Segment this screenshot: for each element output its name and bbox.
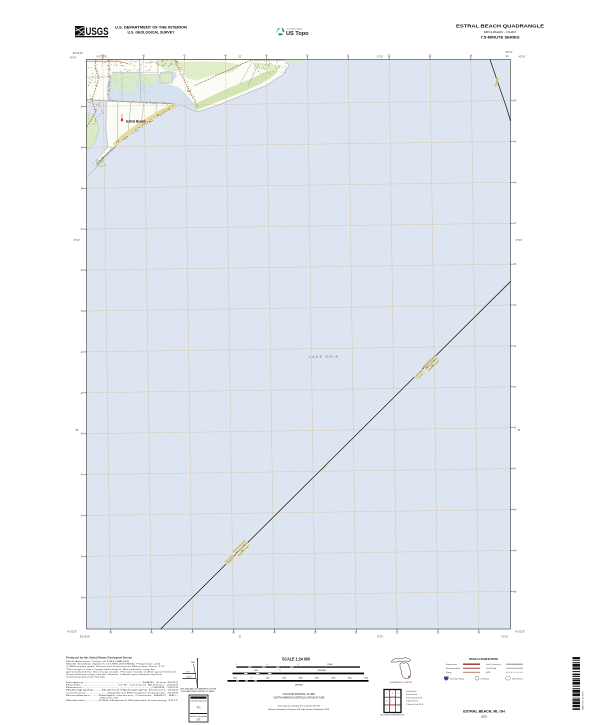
svg-text:QUADRANGLE LOCATION: QUADRANGLE LOCATION [390,681,413,684]
svg-text:Estral Beach: Estral Beach [126,120,145,124]
svg-text:55': 55' [517,429,521,432]
svg-text:1 Flat Rock: 1 Flat Rock [406,690,416,693]
svg-text:50: 50 [314,632,317,634]
svg-text:This map was produced to confo: This map was produced to conform with th… [278,705,321,708]
svg-text:This map is not a legal docume: This map is not a legal document. Bounda… [66,668,157,671]
svg-text:17'30": 17'30" [377,636,384,639]
svg-text:49: 49 [273,632,276,634]
svg-text:.5: .5 [266,664,268,666]
svg-text:Boundaries.......Multiple sour: Boundaries.......Multiple sources; Censu… [66,694,179,697]
svg-text:1 MILE: 1 MILE [327,664,333,666]
svg-text:National Geospatial Program US: National Geospatial Program US Topo Prod… [268,708,330,711]
svg-text:41°52'30": 41°52'30" [67,631,77,634]
svg-text:52: 52 [396,632,399,634]
svg-text:0: 0 [298,664,299,666]
svg-text:Local Road: Local Road [486,668,496,670]
svg-text:50: 50 [81,107,84,109]
svg-text:50: 50 [514,101,517,103]
svg-text:3000: 3000 [299,678,303,680]
svg-text:4 Stony Point: 4 Stony Point [406,700,418,703]
svg-text:41: 41 [514,469,517,471]
svg-text:ESTRAL BEACH, MI, OH: ESTRAL BEACH, MI, OH [463,710,505,714]
svg-text:46: 46 [150,632,153,634]
svg-text:ROAD CLASSIFICATION: ROAD CLASSIFICATION [469,658,498,661]
svg-text:3 Rockwood OE E: 3 Rockwood OE E [406,697,423,699]
svg-text:48: 48 [224,56,227,58]
svg-text:54: 54 [470,56,473,58]
svg-text:38: 38 [514,591,517,593]
svg-text:42°00': 42°00' [70,57,77,60]
svg-text:North American Datum of 1983 (: North American Datum of 1983 (NAD83) [66,660,130,663]
svg-text:39: 39 [81,556,84,558]
svg-text:7.5-MINUTE SERIES: 7.5-MINUTE SERIES [481,36,521,40]
svg-text:'45: '45 [109,632,113,634]
svg-text:1000: 1000 [266,678,270,680]
svg-text:44: 44 [514,346,517,348]
svg-text:4000: 4000 [315,678,319,680]
svg-text:US Route: US Route [481,677,491,680]
svg-text:US Topo: US Topo [286,31,309,37]
svg-text:Imagery.......................: Imagery.................................… [66,681,180,684]
svg-text:World Geodetic System of 1984: World Geodetic System of 1984 (WGS84). P… [66,663,161,666]
svg-text:52: 52 [388,56,391,58]
svg-text:2023: 2023 [481,715,487,719]
svg-text:47: 47 [81,229,84,231]
svg-text:47: 47 [183,56,186,58]
svg-text:entering private lands.: entering private lands. [66,676,107,679]
svg-text:MICHIGAN - OHIO: MICHIGAN - OHIO [484,30,517,34]
svg-text:46: 46 [514,264,517,266]
svg-text:Hydrography.......National Hyd: Hydrography.......National Hydrography D… [66,689,180,692]
svg-text:49: 49 [81,147,84,149]
svg-text:20': 20' [238,636,242,639]
svg-text:44: 44 [81,352,84,354]
svg-text:40: 40 [514,510,517,512]
svg-text:42°00': 42°00' [519,56,526,59]
svg-text:53: 53 [437,632,440,634]
svg-text:1: 1 [236,664,237,666]
svg-text:3: 3 [398,693,399,695]
svg-text:5000: 5000 [332,678,336,680]
svg-text:55': 55' [75,429,79,432]
svg-text:48: 48 [81,188,84,190]
svg-text:50: 50 [306,56,309,58]
svg-text:43: 43 [81,393,84,395]
svg-text:³¹⁰57'30"E: ³¹⁰57'30"E [96,56,107,59]
svg-text:48: 48 [514,182,517,184]
svg-text:Produced by the United States: Produced by the United States Geological… [66,657,133,660]
svg-text:5: 5 [386,708,387,710]
svg-text:1 000-meter grid: Universal Tr: 1 000-meter grid: Universal Transverse M… [66,665,166,668]
svg-text:Expressway: Expressway [446,664,457,666]
svg-text:53: 53 [429,56,432,58]
svg-text:0: 0 [251,678,252,680]
svg-text:Ramp: Ramp [446,672,452,674]
svg-text:6000: 6000 [348,678,352,680]
svg-text:1000: 1000 [233,678,237,680]
svg-text:SCALE 1:24 000: SCALE 1:24 000 [282,657,311,662]
svg-text:83°22'30": 83°22'30" [73,52,83,55]
svg-text:17'30": 17'30" [377,56,384,59]
svg-text:U.S. GEOLOGICAL SURVEY: U.S. GEOLOGICAL SURVEY [128,31,176,35]
svg-text:48: 48 [232,632,235,634]
svg-text:²24: ²24 [505,55,509,58]
svg-text:49: 49 [514,141,517,143]
svg-text:51: 51 [347,56,350,58]
svg-text:U.S. DEPARTMENT OF THE INTERIO: U.S. DEPARTMENT OF THE INTERIOR [115,26,188,30]
svg-text:MN: MN [191,662,195,664]
svg-text:NORTH AMERICAN VERTICAL DATUM: NORTH AMERICAN VERTICAL DATUM OF 1988 [274,696,325,699]
svg-text:ADJOINING QUADRANGLES: ADJOINING QUADRANGLES [380,714,405,717]
svg-text:generalized for this map scale: generalized for this map scale. Private … [66,670,177,673]
svg-text:2000: 2000 [282,678,286,680]
svg-text:17T: 17T [196,718,201,722]
svg-text:49: 49 [265,56,268,58]
svg-text:51: 51 [355,632,358,634]
svg-text:Secondary Hwy: Secondary Hwy [446,668,460,670]
svg-text:42: 42 [81,434,84,436]
svg-text:1: 1 [386,693,387,695]
svg-text:4WD: 4WD [486,672,491,674]
svg-text:★: ★ [196,657,199,661]
svg-text:5 Stony Point OE S: 5 Stony Point OE S [406,703,424,706]
svg-text:1000 FEET: 1000 FEET [317,670,327,672]
svg-text:0: 0 [280,670,281,672]
svg-text:40: 40 [81,516,84,518]
svg-text:20': 20' [238,56,242,59]
svg-text:Interstate Route: Interstate Route [450,677,465,680]
svg-text:39: 39 [514,550,517,552]
svg-text:38: 38 [81,597,84,599]
svg-text:47: 47 [514,223,517,225]
svg-text:LAKE ERIE: LAKE ERIE [309,354,340,359]
svg-text:83°15': 83°15' [502,636,509,639]
svg-text:46: 46 [142,56,145,58]
svg-text:Wetlands...........FWS Nationa: Wetlands...........FWS National Wetlands… [66,699,180,702]
svg-text:57'30": 57'30" [516,239,523,242]
svg-text:2: 2 [392,693,393,695]
svg-text:47: 47 [191,632,194,634]
svg-text:Roads.........................: Roads.......................... U.S. Cen… [66,684,180,687]
svg-text:2 Rockwood: 2 Rockwood [406,694,417,696]
svg-text:ESTRAL BEACH QUADRANGLE: ESTRAL BEACH QUADRANGLE [456,24,545,30]
svg-text:100,000-m Square ID: 100,000-m Square ID [190,700,207,703]
svg-text:43: 43 [514,387,517,389]
svg-text:Local Connector: Local Connector [486,663,501,666]
svg-text:45: 45 [514,305,517,307]
svg-text:45: 45 [81,311,84,313]
svg-text:46: 46 [81,270,84,272]
svg-text:83°22'30": 83°22'30" [80,636,90,639]
svg-text:reservations may not be shown.: reservations may not be shown. Obtain pe… [66,673,164,676]
svg-text:State Route: State Route [512,677,523,680]
svg-text:METERS: METERS [295,684,303,686]
svg-text:DECLINATION AT CENTER OF SHEET: DECLINATION AT CENTER OF SHEET [181,690,215,693]
svg-text:41°52'30": 41°52'30" [515,631,525,634]
svg-text:CONTOUR INTERVAL 10 FEET: CONTOUR INTERVAL 10 FEET [283,693,316,696]
svg-text:83°15': 83°15' [506,51,513,54]
svg-text:4: 4 [386,701,387,703]
svg-text:41: 41 [81,475,84,477]
svg-text:7000: 7000 [364,678,368,680]
svg-text:57'30": 57'30" [74,239,81,242]
svg-text:Contours.................Natio: Contours.................National Elevat… [66,691,180,694]
svg-text:54: 54 [478,632,481,634]
svg-text:1°8': 1°8' [186,671,190,673]
svg-text:TG: TG [196,706,201,710]
svg-text:ISBN 978-1-26-3378: ISBN 978-1-26-3378 [583,691,585,710]
svg-text:1000: 1000 [254,670,258,672]
